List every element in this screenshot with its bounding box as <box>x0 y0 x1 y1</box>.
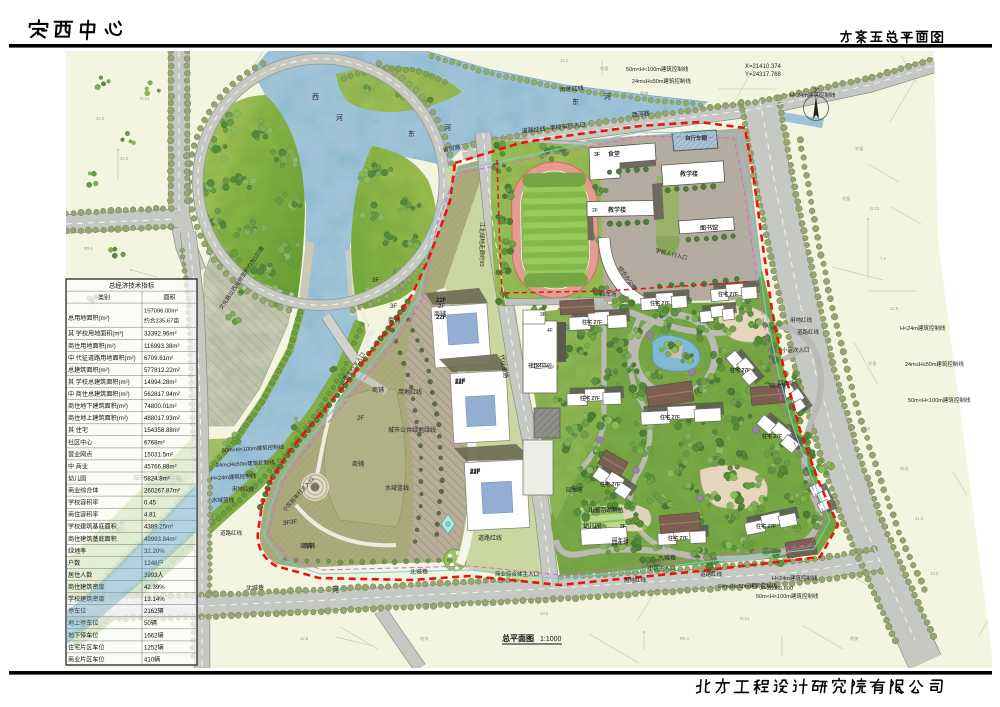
svg-text:社区中心: 社区中心 <box>530 362 554 370</box>
svg-text:12.5: 12.5 <box>862 426 871 431</box>
svg-text:1:1000: 1:1000 <box>540 636 562 643</box>
svg-text:33392.96m²: 33392.96m² <box>144 331 177 338</box>
svg-text:食堂: 食堂 <box>608 150 620 158</box>
svg-text:中 商住总建筑面积(m²): 中 商住总建筑面积(m²) <box>68 390 130 398</box>
svg-text:回车场: 回车场 <box>778 379 795 387</box>
svg-text:水域蓝线: 水域蓝线 <box>212 496 235 504</box>
svg-text:住宅片区车位: 住宅片区车位 <box>68 643 105 651</box>
svg-text:74800.01m²: 74800.01m² <box>144 403 177 410</box>
svg-text:商住容积率: 商住容积率 <box>68 511 98 519</box>
svg-text:商住建筑基底面积: 商住建筑基底面积 <box>68 535 117 543</box>
svg-text:住宅 27F: 住宅 27F <box>756 523 776 530</box>
svg-text:G-21: G-21 <box>520 76 530 81</box>
svg-text:2F: 2F <box>592 208 598 214</box>
svg-text:4F: 4F <box>547 328 553 334</box>
svg-text:中 代征道路用地面积(m²): 中 代征道路用地面积(m²) <box>68 354 136 362</box>
svg-text:6768m²: 6768m² <box>144 439 165 446</box>
svg-text:3F: 3F <box>290 520 297 526</box>
svg-text:4.81: 4.81 <box>144 512 156 519</box>
svg-text:东: 东 <box>408 129 415 138</box>
svg-text:商业片区车位: 商业片区车位 <box>68 655 105 663</box>
svg-text:河: 河 <box>332 586 339 594</box>
svg-text:商住地下建筑面积(m²): 商住地下建筑面积(m²) <box>68 402 128 410</box>
svg-text:地块: 地块 <box>850 635 859 642</box>
svg-text:G-21: G-21 <box>140 96 150 101</box>
svg-text:2F: 2F <box>357 416 364 422</box>
svg-text:宅基: 宅基 <box>855 145 864 151</box>
svg-text:教学楼: 教学楼 <box>680 170 698 178</box>
svg-text:西: 西 <box>312 93 319 101</box>
svg-text:城市公共绿地绿线: 城市公共绿地绿线 <box>388 426 436 434</box>
svg-text:道路红线: 道路红线 <box>797 328 820 336</box>
svg-text:商业综合体: 商业综合体 <box>68 487 98 495</box>
svg-text:水域蓝线: 水域蓝线 <box>385 484 409 492</box>
svg-text:社区中心: 社区中心 <box>68 438 92 446</box>
svg-text:住宅 27F: 住宅 27F <box>718 291 738 298</box>
svg-text:22F: 22F <box>436 315 447 321</box>
svg-text:562817.94m²: 562817.94m² <box>144 391 180 398</box>
svg-text:学校容积率: 学校容积率 <box>68 499 98 507</box>
svg-text:用地红线: 用地红线 <box>624 576 647 584</box>
svg-text:3F: 3F <box>620 524 626 530</box>
svg-text:道路红线: 道路红线 <box>478 534 502 542</box>
svg-text:绿地率: 绿地率 <box>68 547 86 555</box>
svg-text:24m≤H≤50m建筑控制线: 24m≤H≤50m建筑控制线 <box>632 77 691 85</box>
svg-text:577812.22m²: 577812.22m² <box>144 367 180 374</box>
svg-text:260267.87m²: 260267.87m² <box>144 488 180 495</box>
svg-text:住宅 27F: 住宅 27F <box>668 535 688 542</box>
svg-text:24m≤H≤50m建筑控制线: 24m≤H≤50m建筑控制线 <box>905 360 964 368</box>
svg-text:3F: 3F <box>540 312 546 318</box>
svg-text:商铺: 商铺 <box>352 460 364 468</box>
svg-text:13.2: 13.2 <box>540 611 549 616</box>
svg-text:幼儿园: 幼儿园 <box>68 474 86 482</box>
svg-text:14994.28m²: 14994.28m² <box>144 379 177 386</box>
svg-text:2162辆: 2162辆 <box>144 607 164 615</box>
svg-text:X=20966.600: X=20966.600 <box>760 586 793 592</box>
svg-text:学校建筑基底面积: 学校建筑基底面积 <box>68 523 117 531</box>
svg-text:50m<H<100m建筑控制线: 50m<H<100m建筑控制线 <box>908 396 971 404</box>
svg-text:12.5: 12.5 <box>300 636 309 641</box>
svg-text:营业网点: 营业网点 <box>68 450 92 458</box>
svg-text:5824.8m²: 5824.8m² <box>144 475 170 482</box>
svg-text:21.0: 21.0 <box>120 156 129 161</box>
svg-text:488017.93m²: 488017.93m² <box>144 415 180 422</box>
svg-text:回车场: 回车场 <box>566 486 583 494</box>
svg-text:用地红线: 用地红线 <box>232 485 255 493</box>
svg-text:50m<H<100m建筑控制线: 50m<H<100m建筑控制线 <box>756 592 819 600</box>
svg-text:回车场: 回车场 <box>612 536 629 544</box>
svg-text:小区次入口: 小区次入口 <box>782 346 810 354</box>
svg-text:地块: 地块 <box>420 635 429 642</box>
svg-text:45766.88m²: 45766.88m² <box>144 463 177 470</box>
svg-text:总经济技术指标: 总经济技术指标 <box>109 281 155 290</box>
svg-text:住宅 27F: 住宅 27F <box>730 367 750 374</box>
svg-text:3F: 3F <box>594 152 600 158</box>
svg-text:15031.5m²: 15031.5m² <box>144 451 173 458</box>
svg-text:江北绿地走廊约93: 江北绿地走廊约93 <box>478 222 486 267</box>
svg-text:用地红线: 用地红线 <box>398 388 422 396</box>
svg-text:商业综合体主入口: 商业综合体主入口 <box>495 570 539 578</box>
svg-text:宅基: 宅基 <box>868 360 877 366</box>
svg-text:42.39%: 42.39% <box>144 584 165 591</box>
svg-text:0.45: 0.45 <box>144 500 156 507</box>
svg-text:H<24m建筑控制线: H<24m建筑控制线 <box>790 91 836 99</box>
svg-text:1252辆: 1252辆 <box>144 643 164 651</box>
svg-text:河: 河 <box>336 114 343 122</box>
svg-text:Y=24317.768: Y=24317.768 <box>745 72 782 78</box>
svg-text:小区主入口: 小区主入口 <box>648 564 676 572</box>
svg-text:157096.00m²: 157096.00m² <box>144 308 178 314</box>
svg-text:G-21: G-21 <box>870 206 880 211</box>
svg-text:其 住宅: 其 住宅 <box>68 426 88 434</box>
svg-text:商住地上建筑面积(m²): 商住地上建筑面积(m²) <box>68 414 128 422</box>
svg-text:总建筑面积(m²): 总建筑面积(m²) <box>68 366 110 374</box>
svg-text:宅基: 宅基 <box>842 195 851 201</box>
svg-text:R2-1: R2-1 <box>680 636 690 641</box>
svg-text:3F: 3F <box>390 304 397 310</box>
svg-text:7.4: 7.4 <box>880 256 886 261</box>
svg-text:商铺: 商铺 <box>372 386 384 394</box>
svg-text:户数: 户数 <box>68 559 80 567</box>
svg-text:3F: 3F <box>283 521 290 527</box>
svg-text:21.0: 21.0 <box>96 116 105 121</box>
svg-text:3F: 3F <box>372 278 379 284</box>
svg-text:宅基: 宅基 <box>600 65 609 71</box>
svg-text:道路红线: 道路红线 <box>700 570 723 578</box>
svg-text:R2-1: R2-1 <box>84 246 94 251</box>
svg-text:道路红线: 道路红线 <box>220 529 243 537</box>
svg-text:21.0: 21.0 <box>890 306 899 311</box>
svg-text:154358.88m²: 154358.88m² <box>144 427 180 434</box>
svg-text:河: 河 <box>444 124 451 132</box>
svg-text:类别: 类别 <box>98 294 110 302</box>
svg-text:H<24m建筑控制线: H<24m建筑控制线 <box>900 324 946 332</box>
svg-text:幼儿园: 幼儿园 <box>583 522 601 530</box>
svg-text:住宅 27F: 住宅 27F <box>600 481 620 488</box>
svg-text:住宅 27F: 住宅 27F <box>762 433 782 440</box>
svg-text:13.2: 13.2 <box>930 571 939 576</box>
svg-text:住宅 27F: 住宅 27F <box>660 414 680 421</box>
svg-text:商住用地面积(m²): 商住用地面积(m²) <box>68 342 116 350</box>
svg-text:图书馆: 图书馆 <box>700 224 718 232</box>
svg-text:2F: 2F <box>438 304 445 310</box>
svg-text:东: 东 <box>572 97 579 106</box>
svg-text:其 学校用地面积(m²): 其 学校用地面积(m²) <box>68 330 124 338</box>
svg-text:H<24m建筑控制线: H<24m建筑控制线 <box>772 574 818 582</box>
svg-text:6709.61m²: 6709.61m² <box>144 355 173 362</box>
svg-text:50m<H<100m建筑控制线: 50m<H<100m建筑控制线 <box>626 65 689 73</box>
svg-text:13.14%: 13.14% <box>144 596 165 603</box>
svg-text:50辆: 50辆 <box>144 619 157 627</box>
svg-text:21.0: 21.0 <box>915 516 924 521</box>
svg-text:商铺: 商铺 <box>300 542 312 550</box>
svg-text:儿童活动场地: 儿童活动场地 <box>590 506 624 514</box>
svg-text:410辆: 410辆 <box>144 655 160 663</box>
svg-text:1662辆: 1662辆 <box>144 631 164 639</box>
svg-text:总用地面积(m²): 总用地面积(m²) <box>68 314 110 322</box>
svg-text:地块: 地块 <box>640 90 649 97</box>
svg-text:住宅 27F: 住宅 27F <box>580 395 600 402</box>
svg-text:用地红线: 用地红线 <box>790 316 813 324</box>
svg-text:22F: 22F <box>455 380 466 386</box>
svg-text:河: 河 <box>604 93 611 101</box>
svg-text:116993.38m²: 116993.38m² <box>144 343 179 350</box>
svg-text:X=21410.374: X=21410.374 <box>745 64 782 70</box>
svg-text:约合235.67亩: 约合235.67亩 <box>144 316 179 324</box>
svg-text:其 学校总建筑面积(m²): 其 学校总建筑面积(m²) <box>68 378 130 386</box>
svg-text:住宅 27F: 住宅 27F <box>582 319 602 326</box>
svg-text:住宅 27F: 住宅 27F <box>650 300 670 307</box>
svg-text:面积: 面积 <box>163 294 175 302</box>
svg-text:中 商业: 中 商业 <box>68 462 88 470</box>
svg-text:22F: 22F <box>470 470 481 476</box>
svg-text:地块: 地块 <box>900 465 909 472</box>
svg-text:自行车棚: 自行车棚 <box>685 134 708 142</box>
svg-text:G-21: G-21 <box>740 616 750 621</box>
svg-text:总平面图: 总平面图 <box>502 633 534 643</box>
svg-text:居住人数: 居住人数 <box>68 571 92 579</box>
svg-text:13.2: 13.2 <box>560 58 569 63</box>
svg-text:教学楼: 教学楼 <box>608 206 626 214</box>
